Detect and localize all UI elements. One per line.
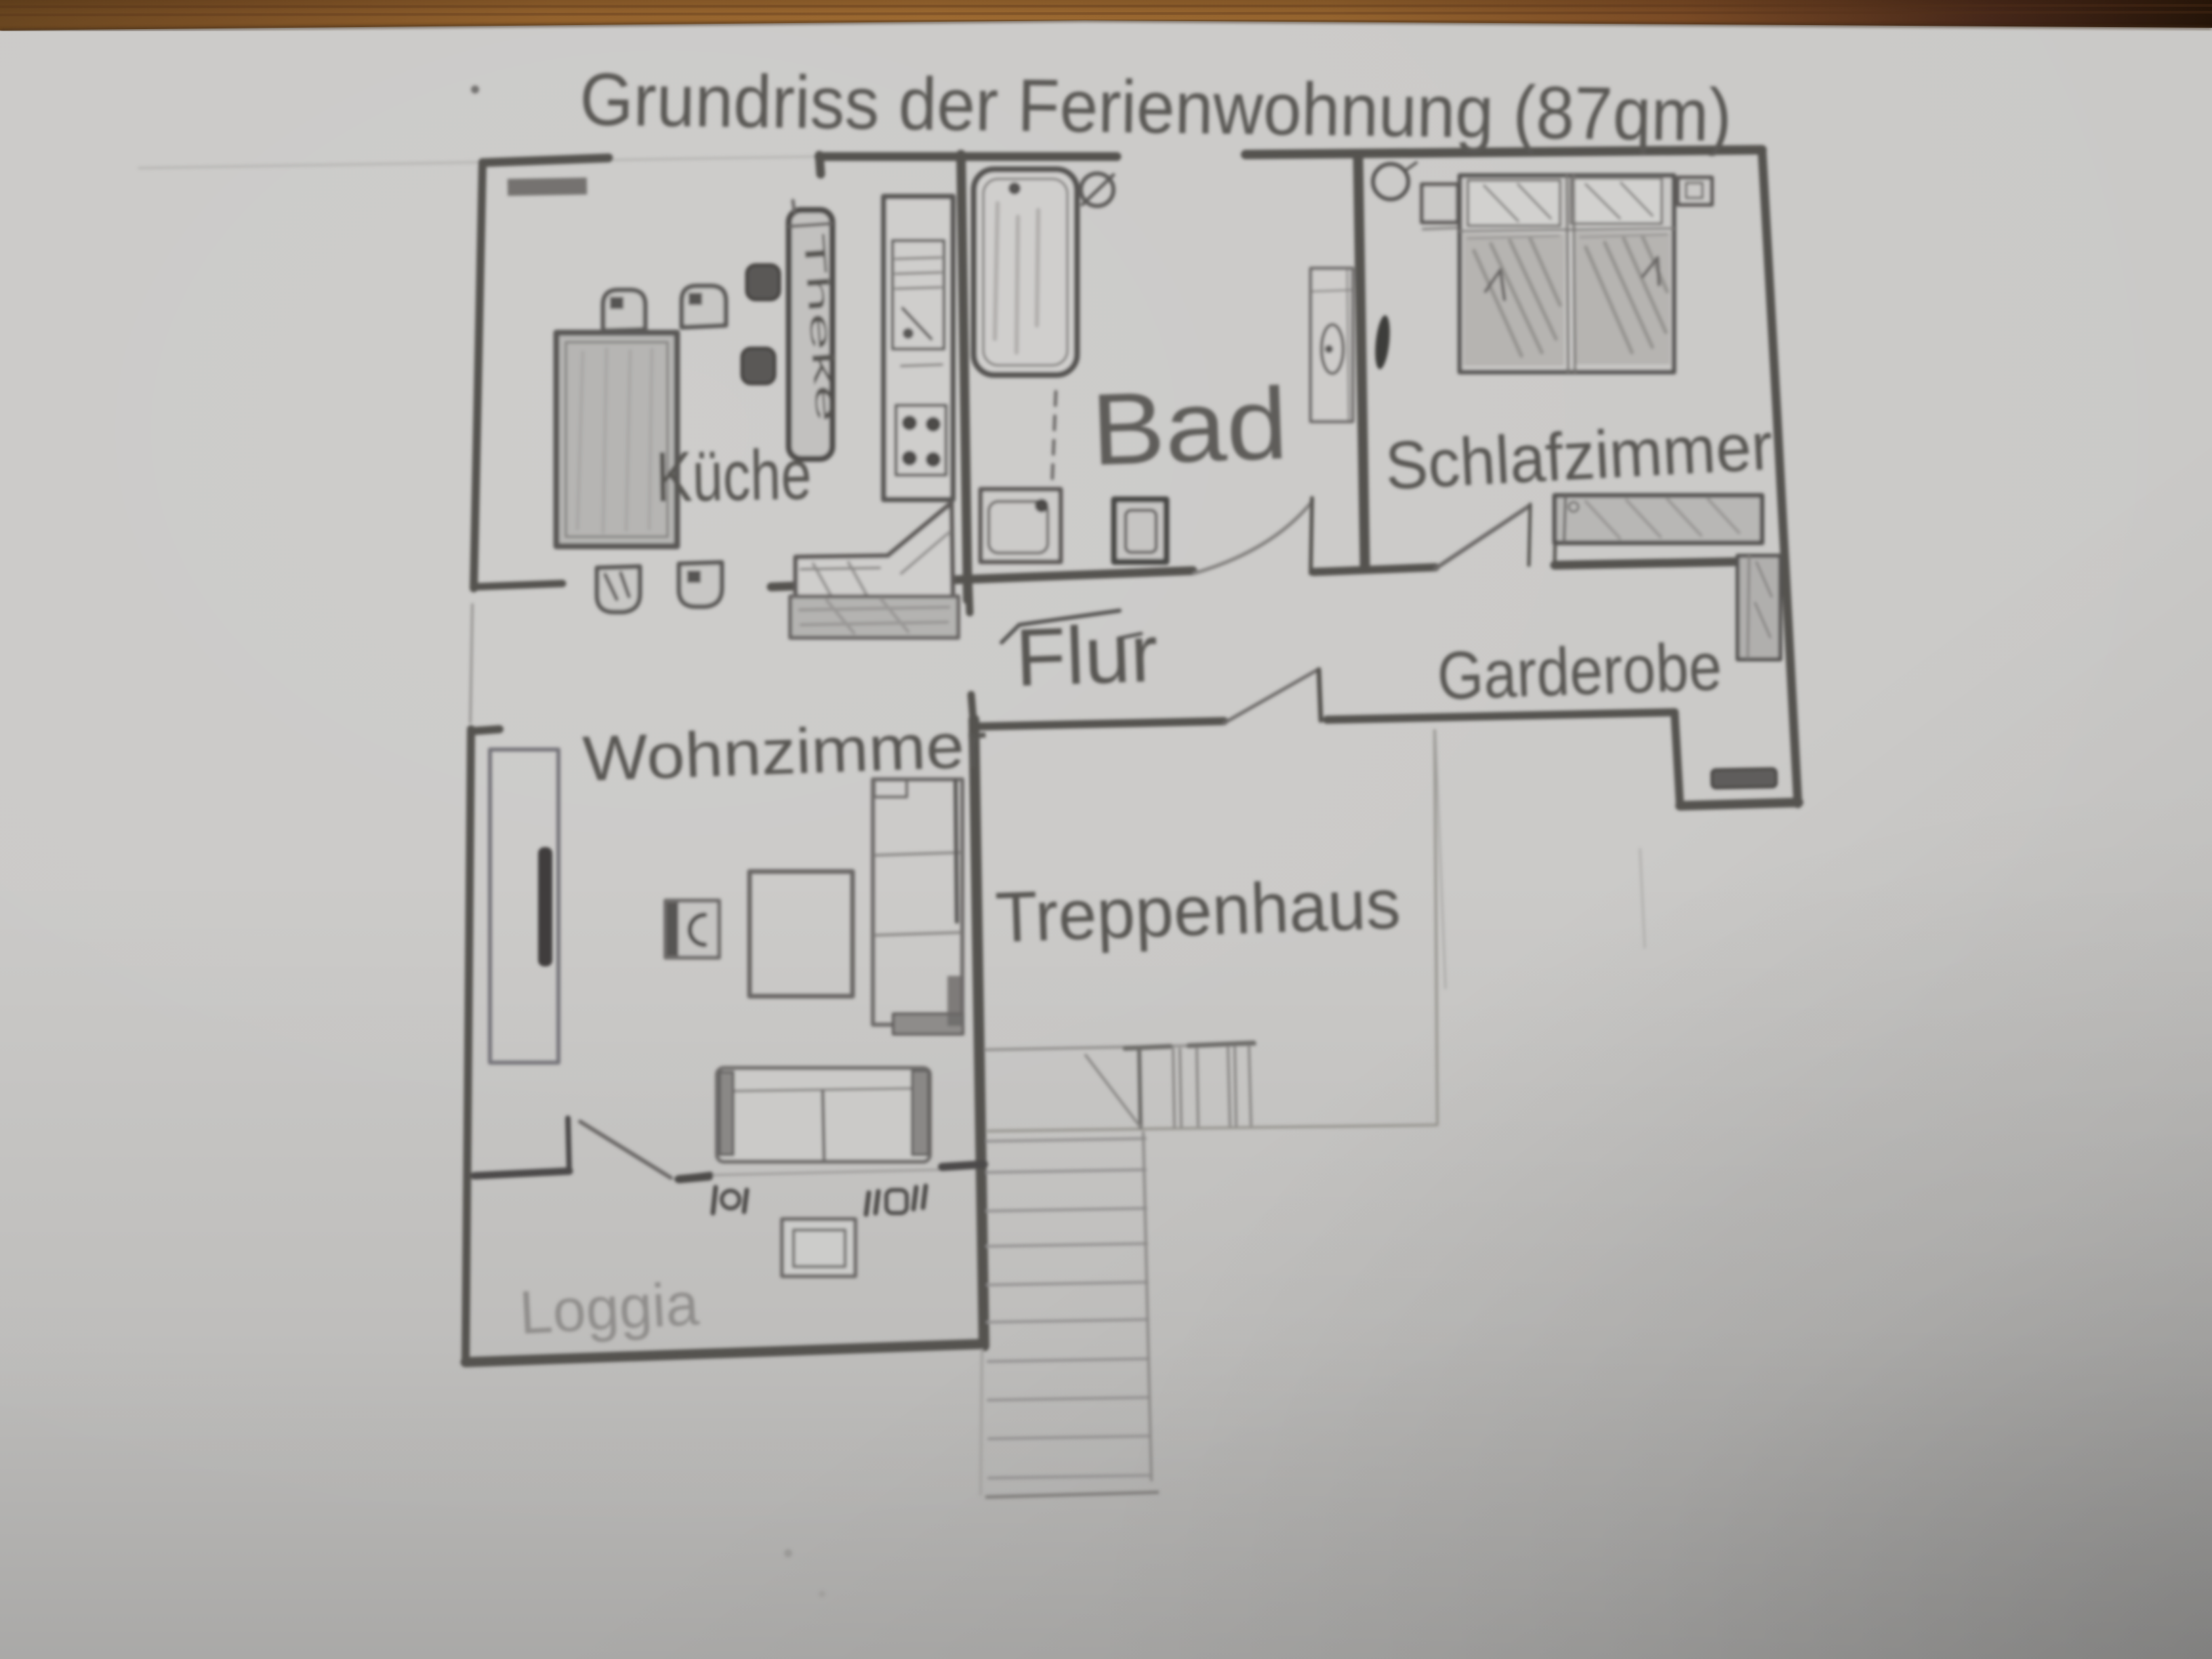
svg-text:Küche: Küche xyxy=(655,435,812,517)
svg-text:Treppenhaus: Treppenhaus xyxy=(994,864,1402,958)
svg-text:Wohnzimmer: Wohnzimmer xyxy=(581,709,988,794)
svg-text:Loggia: Loggia xyxy=(518,1270,701,1347)
svg-text:Grundriss der Ferienwohnung (8: Grundriss der Ferienwohnung (87qm) xyxy=(579,58,1733,157)
svg-text:Bad: Bad xyxy=(1089,366,1290,487)
svg-text:Garderobe: Garderobe xyxy=(1436,628,1723,714)
